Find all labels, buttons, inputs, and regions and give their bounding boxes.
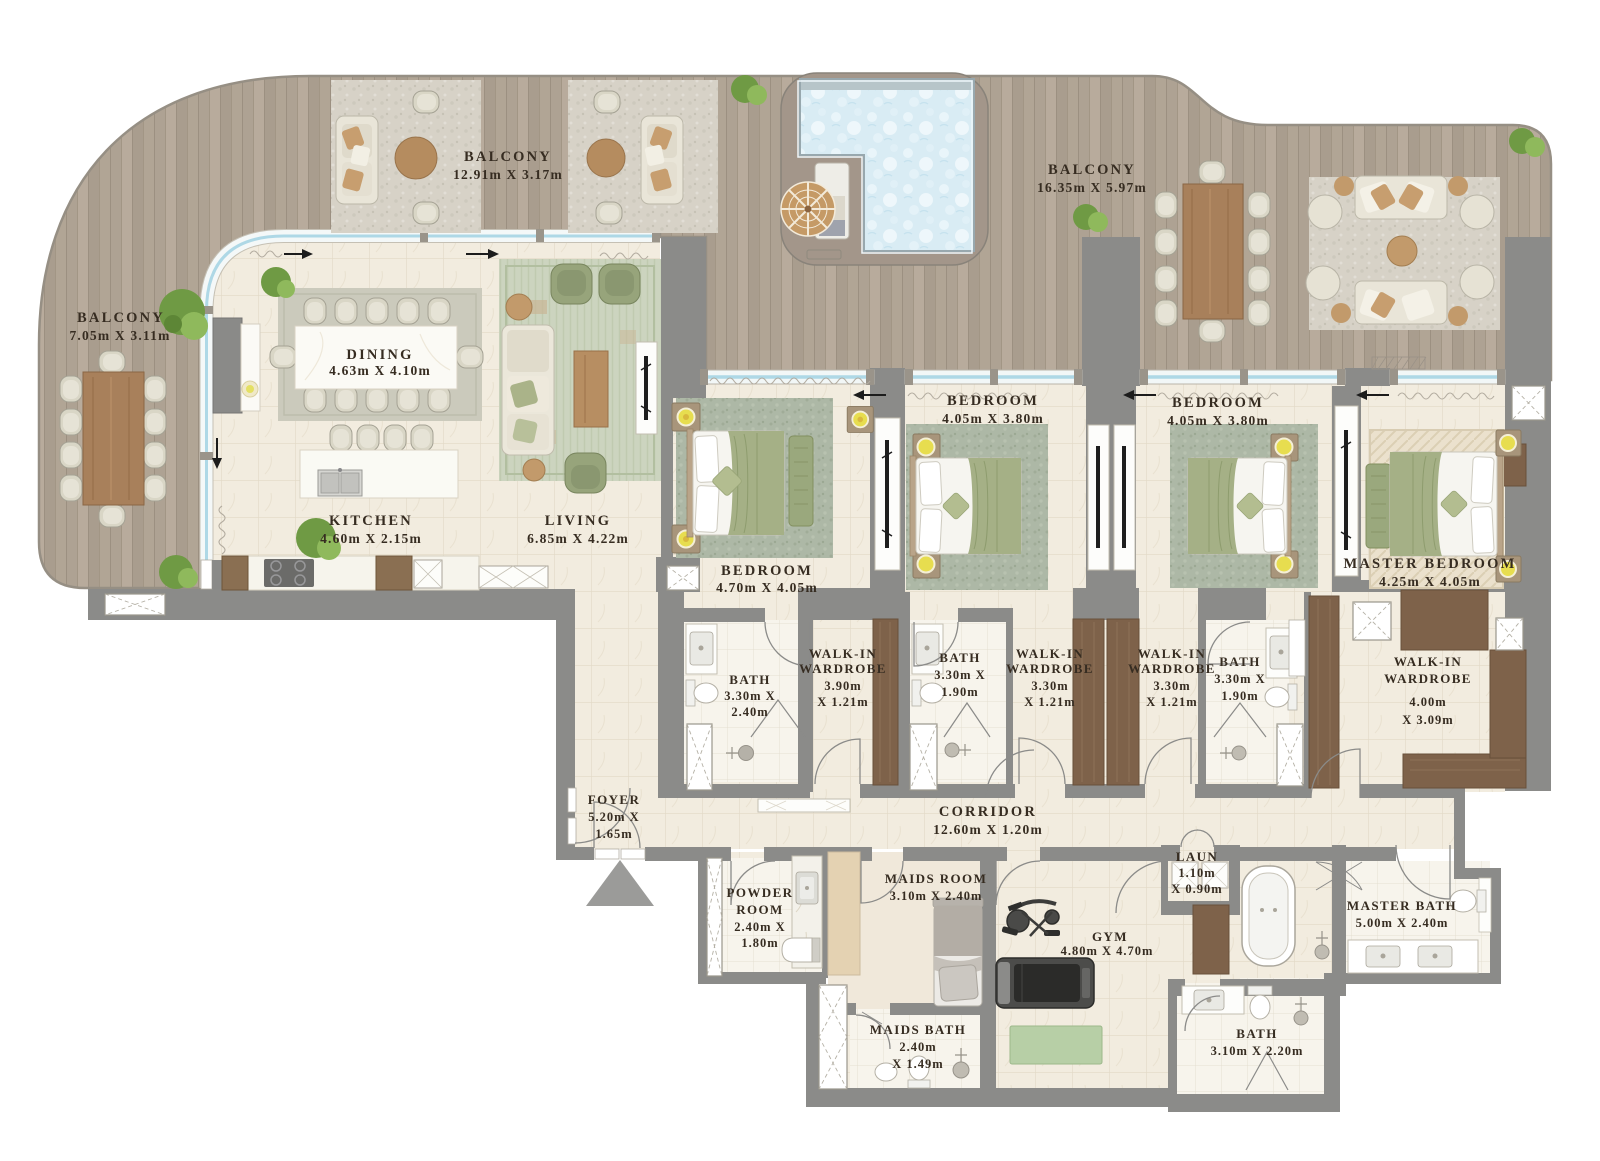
- svg-text:WARDROBE: WARDROBE: [1128, 661, 1216, 676]
- svg-text:4.25m X 4.05m: 4.25m X 4.05m: [1379, 574, 1481, 589]
- svg-text:WARDROBE: WARDROBE: [1384, 671, 1472, 686]
- svg-text:POWDER: POWDER: [727, 885, 794, 900]
- svg-text:3.30m X: 3.30m X: [1214, 672, 1265, 686]
- svg-text:2.40m: 2.40m: [731, 705, 768, 719]
- svg-text:2.40m: 2.40m: [899, 1040, 936, 1054]
- svg-text:3.90m: 3.90m: [824, 679, 861, 693]
- svg-text:MASTER BEDROOM: MASTER BEDROOM: [1344, 556, 1517, 572]
- svg-text:6.85m X 4.22m: 6.85m X 4.22m: [527, 531, 629, 546]
- svg-text:BATH: BATH: [729, 672, 770, 687]
- svg-text:CORRIDOR: CORRIDOR: [939, 804, 1037, 820]
- svg-text:12.91m X 3.17m: 12.91m X 3.17m: [453, 167, 563, 182]
- svg-text:KITCHEN: KITCHEN: [329, 513, 413, 529]
- svg-text:X 0.90m: X 0.90m: [1171, 882, 1222, 896]
- svg-text:12.60m X 1.20m: 12.60m X 1.20m: [933, 822, 1043, 837]
- svg-text:7.05m X 3.11m: 7.05m X 3.11m: [69, 328, 170, 343]
- svg-text:5.00m X 2.40m: 5.00m X 2.40m: [1356, 916, 1449, 930]
- svg-text:1.65m: 1.65m: [595, 827, 632, 841]
- svg-text:GYM: GYM: [1092, 929, 1128, 944]
- svg-text:1.80m: 1.80m: [741, 936, 778, 950]
- svg-text:MASTER BATH: MASTER BATH: [1347, 898, 1457, 913]
- svg-text:BALCONY: BALCONY: [464, 149, 552, 165]
- svg-text:ROOM: ROOM: [736, 902, 783, 917]
- svg-text:LIVING: LIVING: [545, 513, 611, 529]
- svg-text:BEDROOM: BEDROOM: [721, 563, 813, 579]
- svg-text:4.80m X 4.70m: 4.80m X 4.70m: [1061, 944, 1154, 958]
- svg-text:X 1.21m: X 1.21m: [1024, 695, 1075, 709]
- svg-text:WALK-IN: WALK-IN: [1016, 646, 1084, 661]
- svg-text:WARDROBE: WARDROBE: [1006, 661, 1094, 676]
- svg-text:BEDROOM: BEDROOM: [947, 393, 1039, 409]
- svg-text:FOYER: FOYER: [588, 792, 641, 807]
- svg-text:BEDROOM: BEDROOM: [1172, 395, 1264, 411]
- svg-text:2.40m X: 2.40m X: [734, 920, 785, 934]
- svg-text:3.10m X 2.40m: 3.10m X 2.40m: [890, 889, 983, 903]
- svg-text:16.35m X 5.97m: 16.35m X 5.97m: [1037, 180, 1147, 195]
- svg-text:4.63m X 4.10m: 4.63m X 4.10m: [329, 363, 431, 378]
- svg-text:5.20m X: 5.20m X: [588, 810, 639, 824]
- svg-text:BATH: BATH: [939, 650, 980, 665]
- svg-text:MAIDS ROOM: MAIDS ROOM: [885, 871, 987, 886]
- svg-text:3.30m: 3.30m: [1153, 679, 1190, 693]
- svg-text:X 3.09m: X 3.09m: [1402, 713, 1453, 727]
- svg-text:1.90m: 1.90m: [941, 685, 978, 699]
- svg-text:WALK-IN: WALK-IN: [1394, 654, 1462, 669]
- svg-text:X 1.21m: X 1.21m: [817, 695, 868, 709]
- svg-text:4.05m X 3.80m: 4.05m X 3.80m: [1167, 413, 1269, 428]
- svg-text:BATH: BATH: [1219, 654, 1260, 669]
- svg-text:BALCONY: BALCONY: [1048, 162, 1136, 178]
- svg-text:BATH: BATH: [1236, 1026, 1277, 1041]
- svg-text:4.05m X 3.80m: 4.05m X 3.80m: [942, 411, 1044, 426]
- svg-text:WALK-IN: WALK-IN: [809, 646, 877, 661]
- svg-text:4.00m: 4.00m: [1409, 695, 1446, 709]
- svg-text:X 1.49m: X 1.49m: [892, 1057, 943, 1071]
- svg-text:WALK-IN: WALK-IN: [1138, 646, 1206, 661]
- svg-text:1.90m: 1.90m: [1221, 689, 1258, 703]
- svg-text:MAIDS BATH: MAIDS BATH: [870, 1022, 966, 1037]
- svg-text:1.10m: 1.10m: [1178, 866, 1215, 880]
- svg-text:4.70m X 4.05m: 4.70m X 4.05m: [716, 580, 818, 595]
- svg-text:3.30m X: 3.30m X: [724, 689, 775, 703]
- svg-text:3.30m X: 3.30m X: [934, 668, 985, 682]
- svg-text:LAUN: LAUN: [1176, 849, 1218, 864]
- svg-text:3.30m: 3.30m: [1031, 679, 1068, 693]
- svg-text:X 1.21m: X 1.21m: [1146, 695, 1197, 709]
- svg-text:4.60m X 2.15m: 4.60m X 2.15m: [320, 531, 422, 546]
- svg-text:BALCONY: BALCONY: [77, 310, 165, 326]
- svg-text:DINING: DINING: [346, 347, 413, 363]
- svg-text:3.10m X 2.20m: 3.10m X 2.20m: [1211, 1044, 1304, 1058]
- svg-text:WARDROBE: WARDROBE: [799, 661, 887, 676]
